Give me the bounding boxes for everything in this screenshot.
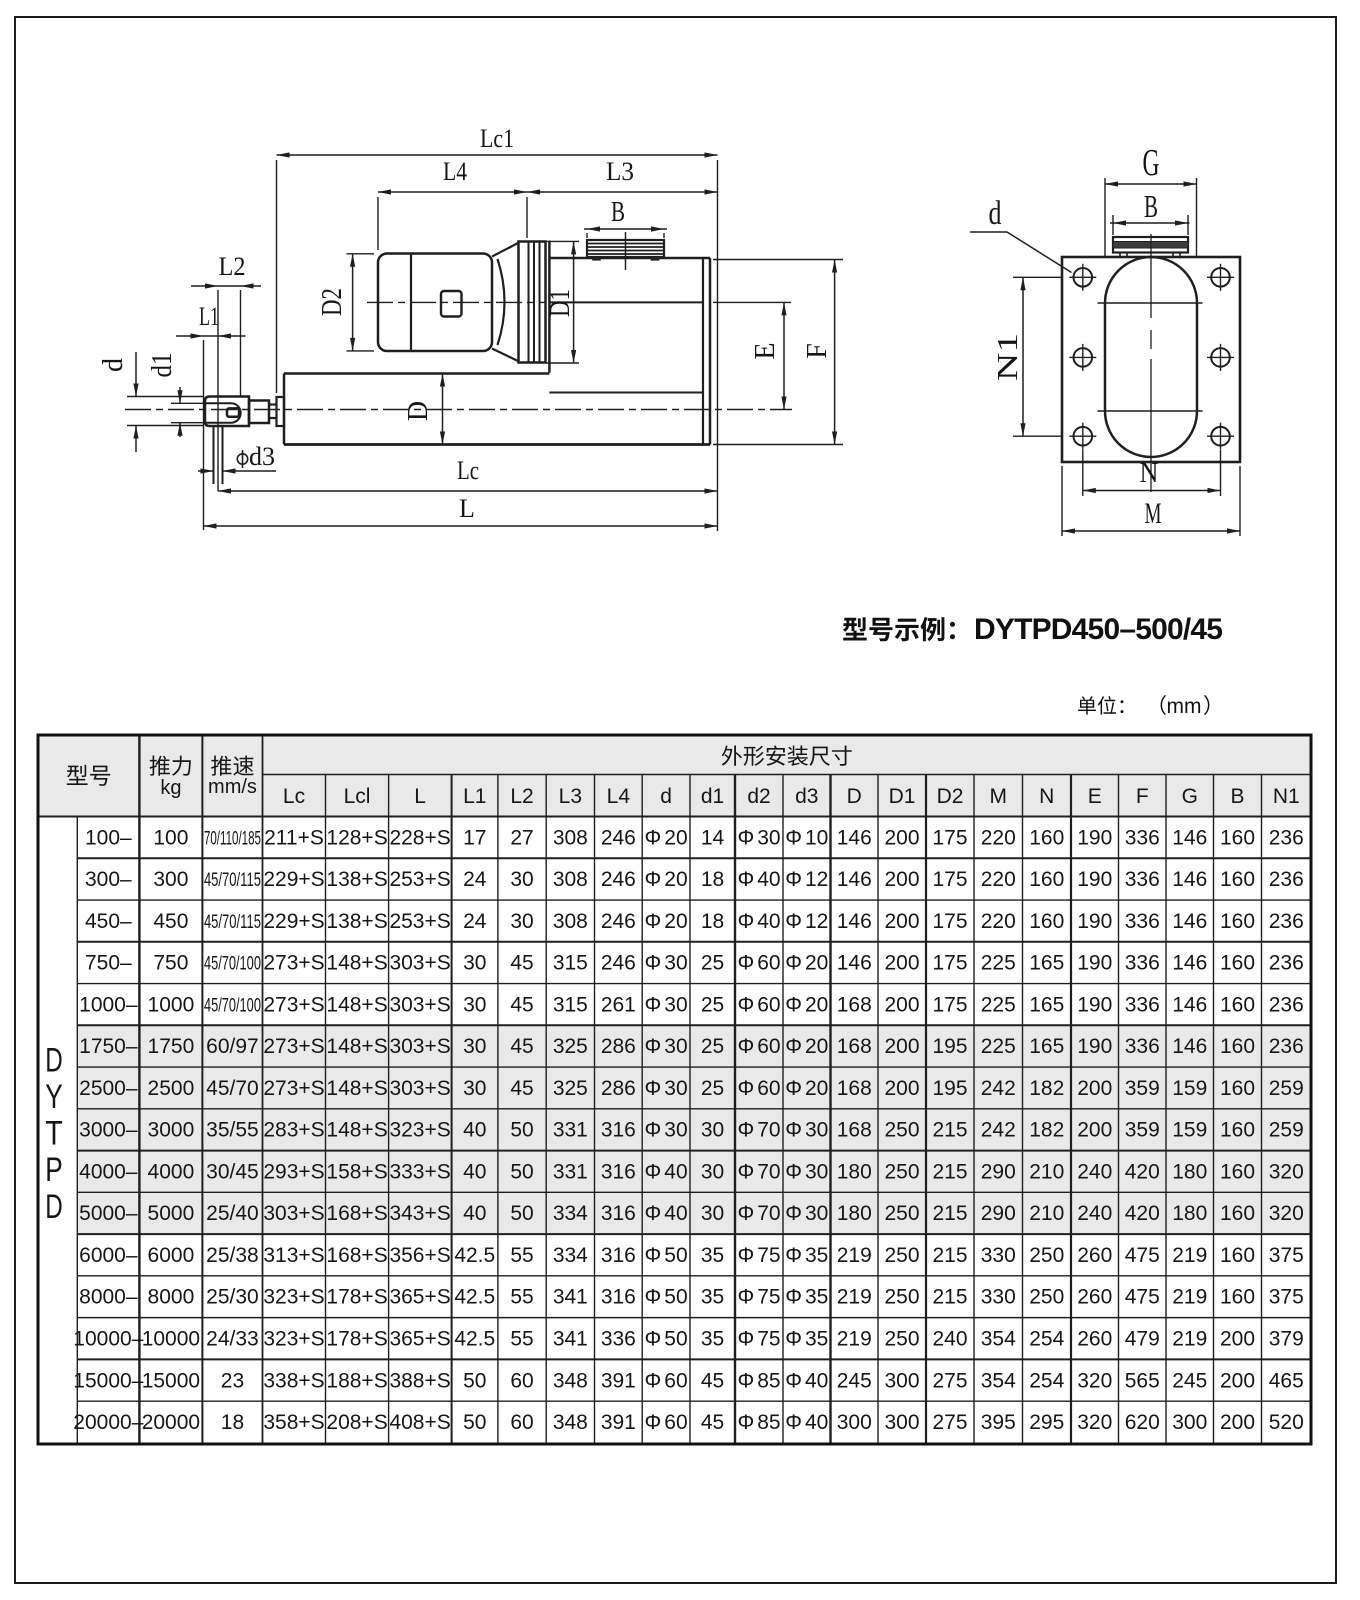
svg-text:30/45: 30/45: [206, 1160, 259, 1183]
svg-text:40: 40: [463, 1119, 486, 1142]
svg-text:146: 146: [1172, 826, 1207, 849]
svg-text:F: F: [1136, 785, 1149, 808]
svg-text:d3: d3: [795, 785, 818, 808]
svg-text:336: 336: [1125, 1035, 1160, 1058]
svg-text:180: 180: [837, 1160, 872, 1183]
svg-text:308: 308: [553, 868, 588, 891]
svg-text:315: 315: [553, 952, 588, 975]
svg-text:160: 160: [1220, 1160, 1255, 1183]
svg-text:220: 220: [981, 826, 1016, 849]
svg-text:331: 331: [553, 1160, 588, 1183]
svg-text:273+S: 273+S: [263, 993, 324, 1016]
svg-text:336: 336: [1125, 826, 1160, 849]
svg-text:35/55: 35/55: [206, 1119, 259, 1142]
svg-text:379: 379: [1269, 1328, 1304, 1351]
svg-text:293+S: 293+S: [263, 1160, 324, 1183]
svg-text:475: 475: [1125, 1244, 1160, 1267]
svg-text:50: 50: [510, 1202, 533, 1225]
svg-text:Φ40: Φ40: [645, 1160, 688, 1183]
svg-text:250: 250: [884, 1202, 919, 1225]
svg-text:359: 359: [1125, 1077, 1160, 1100]
svg-text:290: 290: [981, 1202, 1016, 1225]
svg-text:220: 220: [981, 910, 1016, 933]
svg-text:175: 175: [932, 826, 967, 849]
svg-text:1000: 1000: [148, 993, 195, 1016]
svg-text:T: T: [45, 1115, 63, 1153]
svg-text:228+S: 228+S: [389, 826, 450, 849]
svg-text:L: L: [414, 785, 426, 808]
svg-text:Φ12: Φ12: [785, 868, 828, 891]
svg-text:620: 620: [1125, 1411, 1160, 1434]
svg-text:273+S: 273+S: [263, 1035, 324, 1058]
svg-text:1750–: 1750–: [79, 1035, 138, 1058]
svg-text:358+S: 358+S: [263, 1411, 324, 1434]
svg-text:B: B: [611, 197, 625, 228]
svg-text:DYTPD450–500/45: DYTPD450–500/45: [974, 613, 1222, 646]
svg-text:190: 190: [1077, 826, 1112, 849]
svg-text:175: 175: [932, 910, 967, 933]
svg-text:330: 330: [981, 1286, 1016, 1309]
svg-text:mm: mm: [1167, 695, 1202, 718]
svg-text:225: 225: [981, 1035, 1016, 1058]
svg-text:L: L: [459, 494, 475, 523]
svg-text:320: 320: [1077, 1369, 1112, 1392]
svg-text:146: 146: [1172, 993, 1207, 1016]
svg-text:42.5: 42.5: [454, 1286, 495, 1309]
svg-text:325: 325: [553, 1035, 588, 1058]
svg-text:160: 160: [1220, 1286, 1255, 1309]
svg-text:303+S: 303+S: [389, 1035, 450, 1058]
svg-text:D: D: [45, 1041, 63, 1079]
svg-text:146: 146: [837, 910, 872, 933]
svg-text:336: 336: [1125, 868, 1160, 891]
svg-text:336: 336: [1125, 910, 1160, 933]
svg-text:254: 254: [1029, 1328, 1064, 1351]
svg-text:45/70/115: 45/70/115: [204, 870, 261, 891]
svg-text:Φ40: Φ40: [785, 1411, 828, 1434]
svg-text:219: 219: [837, 1286, 872, 1309]
svg-text:286: 286: [601, 1077, 636, 1100]
svg-text:479: 479: [1125, 1328, 1160, 1351]
svg-text:180: 180: [1172, 1160, 1207, 1183]
svg-text:2500: 2500: [148, 1077, 195, 1100]
svg-text:450: 450: [153, 910, 188, 933]
svg-text:42.5: 42.5: [454, 1328, 495, 1351]
svg-text:253+S: 253+S: [389, 868, 450, 891]
svg-text:60: 60: [510, 1369, 533, 1392]
svg-text:128+S: 128+S: [326, 826, 387, 849]
svg-text:Φ20: Φ20: [645, 826, 688, 849]
svg-text:450–: 450–: [85, 910, 132, 933]
svg-text:Φ60: Φ60: [737, 1077, 780, 1100]
svg-text:190: 190: [1077, 993, 1112, 1016]
svg-text:6000–: 6000–: [79, 1244, 138, 1267]
svg-text:200: 200: [884, 952, 919, 975]
svg-text:210: 210: [1029, 1160, 1064, 1183]
svg-text:100–: 100–: [85, 826, 132, 849]
svg-text:520: 520: [1269, 1411, 1304, 1434]
svg-text:10000–: 10000–: [73, 1328, 143, 1351]
svg-text:225: 225: [981, 993, 1016, 1016]
svg-text:300: 300: [837, 1411, 872, 1434]
svg-text:10000: 10000: [142, 1328, 200, 1351]
svg-text:254: 254: [1029, 1369, 1064, 1392]
svg-text:315: 315: [553, 993, 588, 1016]
svg-text:3000: 3000: [148, 1119, 195, 1142]
svg-text:50: 50: [463, 1369, 486, 1392]
svg-text:313+S: 313+S: [263, 1244, 324, 1267]
svg-text:25: 25: [701, 993, 724, 1016]
svg-text:Φ50: Φ50: [645, 1328, 688, 1351]
svg-text:d2: d2: [747, 785, 770, 808]
svg-text:341: 341: [553, 1286, 588, 1309]
svg-text:408+S: 408+S: [389, 1411, 450, 1434]
svg-text:D: D: [45, 1188, 63, 1226]
svg-text:250: 250: [1029, 1244, 1064, 1267]
svg-text:Φ75: Φ75: [737, 1286, 780, 1309]
svg-text:236: 236: [1269, 952, 1304, 975]
svg-text:200: 200: [1077, 1077, 1112, 1100]
svg-text:Lcl: Lcl: [344, 785, 371, 808]
svg-text:190: 190: [1077, 1035, 1112, 1058]
svg-text:323+S: 323+S: [263, 1286, 324, 1309]
svg-text:168: 168: [837, 1035, 872, 1058]
svg-text:175: 175: [932, 952, 967, 975]
svg-text:175: 175: [932, 993, 967, 1016]
svg-text:300: 300: [884, 1369, 919, 1392]
svg-text:148+S: 148+S: [326, 1035, 387, 1058]
svg-text:Φ60: Φ60: [737, 952, 780, 975]
svg-text:175: 175: [932, 868, 967, 891]
svg-text:5000–: 5000–: [79, 1202, 138, 1225]
svg-text:260: 260: [1077, 1328, 1112, 1351]
svg-text:L1: L1: [463, 785, 486, 808]
svg-text:300: 300: [153, 868, 188, 891]
svg-text:d1: d1: [147, 353, 178, 378]
svg-text:354: 354: [981, 1369, 1016, 1392]
svg-text:273+S: 273+S: [263, 1077, 324, 1100]
svg-text:300: 300: [884, 1411, 919, 1434]
svg-text:146: 146: [837, 826, 872, 849]
svg-text:250: 250: [884, 1286, 919, 1309]
svg-text:55: 55: [510, 1244, 533, 1267]
svg-text:375: 375: [1269, 1244, 1304, 1267]
svg-text:60/97: 60/97: [206, 1035, 259, 1058]
svg-text:Φ50: Φ50: [645, 1244, 688, 1267]
svg-text:160: 160: [1220, 826, 1255, 849]
svg-text:45/70/100: 45/70/100: [204, 995, 261, 1016]
svg-text:465: 465: [1269, 1369, 1304, 1392]
svg-text:336: 336: [601, 1328, 636, 1351]
svg-text:55: 55: [510, 1286, 533, 1309]
svg-text:330: 330: [981, 1244, 1016, 1267]
svg-text:242: 242: [981, 1077, 1016, 1100]
svg-text:Lc: Lc: [457, 456, 479, 485]
svg-text:Φ35: Φ35: [785, 1286, 828, 1309]
svg-text:Φ60: Φ60: [645, 1369, 688, 1392]
svg-text:25/30: 25/30: [206, 1286, 259, 1309]
svg-text:160: 160: [1220, 1202, 1255, 1225]
svg-text:30: 30: [510, 910, 533, 933]
svg-text:L3: L3: [606, 157, 634, 186]
svg-text:236: 236: [1269, 826, 1304, 849]
svg-text:320: 320: [1077, 1411, 1112, 1434]
svg-text:211+S: 211+S: [264, 826, 324, 849]
svg-text:250: 250: [884, 1244, 919, 1267]
svg-text:L1: L1: [199, 302, 219, 331]
svg-text:308: 308: [553, 910, 588, 933]
svg-text:Φ70: Φ70: [737, 1160, 780, 1183]
svg-text:341: 341: [553, 1328, 588, 1351]
svg-text:331: 331: [553, 1119, 588, 1142]
svg-text:260: 260: [1077, 1244, 1112, 1267]
svg-text:190: 190: [1077, 952, 1112, 975]
svg-text:24: 24: [463, 910, 487, 933]
svg-text:303+S: 303+S: [263, 1202, 324, 1225]
svg-text:18: 18: [701, 868, 724, 891]
svg-text:45: 45: [510, 993, 533, 1016]
svg-text:295: 295: [1029, 1411, 1064, 1434]
svg-text:25/38: 25/38: [206, 1244, 259, 1267]
svg-text:356+S: 356+S: [389, 1244, 450, 1267]
svg-text:Φ20: Φ20: [785, 993, 828, 1016]
svg-text:Φ40: Φ40: [737, 868, 780, 891]
svg-text:210: 210: [1029, 1202, 1064, 1225]
svg-text:D: D: [403, 401, 434, 421]
svg-text:159: 159: [1172, 1119, 1207, 1142]
svg-text:225: 225: [981, 952, 1016, 975]
svg-text:30: 30: [701, 1202, 724, 1225]
svg-text:146: 146: [1172, 952, 1207, 975]
svg-text:Φ30: Φ30: [645, 952, 688, 975]
svg-text:30: 30: [463, 952, 486, 975]
svg-text:50: 50: [463, 1411, 486, 1434]
svg-text:P: P: [45, 1151, 63, 1189]
svg-text:100: 100: [153, 826, 188, 849]
svg-text:4000–: 4000–: [79, 1160, 138, 1183]
svg-text:146: 146: [1172, 1035, 1207, 1058]
svg-text:160: 160: [1220, 868, 1255, 891]
svg-text:G: G: [1143, 142, 1160, 184]
svg-text:215: 215: [932, 1244, 967, 1267]
svg-text:750–: 750–: [85, 952, 132, 975]
svg-text:219: 219: [1172, 1244, 1207, 1267]
svg-text:148+S: 148+S: [326, 993, 387, 1016]
svg-text:750: 750: [153, 952, 188, 975]
svg-text:Φ12: Φ12: [785, 910, 828, 933]
svg-text:160: 160: [1220, 993, 1255, 1016]
svg-text:303+S: 303+S: [389, 1077, 450, 1100]
svg-text:391: 391: [601, 1369, 636, 1392]
svg-text:334: 334: [553, 1202, 588, 1225]
svg-text:30: 30: [463, 1077, 486, 1100]
svg-text:30: 30: [701, 1160, 724, 1183]
svg-text:Φ40: Φ40: [737, 910, 780, 933]
svg-text:215: 215: [932, 1119, 967, 1142]
svg-text:334: 334: [553, 1244, 588, 1267]
svg-text:260: 260: [1077, 1286, 1112, 1309]
svg-text:316: 316: [601, 1160, 636, 1183]
svg-text:18: 18: [221, 1411, 244, 1434]
svg-text:25: 25: [701, 1035, 724, 1058]
svg-text:146: 146: [1172, 868, 1207, 891]
svg-text:190: 190: [1077, 868, 1112, 891]
svg-text:Lc1: Lc1: [480, 124, 514, 153]
svg-text:348: 348: [553, 1369, 588, 1392]
svg-text:160: 160: [1220, 910, 1255, 933]
svg-text:N1: N1: [992, 333, 1024, 381]
svg-text:159: 159: [1172, 1077, 1207, 1100]
svg-text:375: 375: [1269, 1286, 1304, 1309]
svg-text:148+S: 148+S: [326, 952, 387, 975]
svg-text:300: 300: [1172, 1411, 1207, 1434]
svg-text:220: 220: [981, 868, 1016, 891]
svg-text:200: 200: [884, 1035, 919, 1058]
svg-text:Φ70: Φ70: [737, 1202, 780, 1225]
svg-text:45: 45: [701, 1369, 724, 1392]
svg-text:316: 316: [601, 1119, 636, 1142]
svg-text:158+S: 158+S: [326, 1160, 387, 1183]
svg-text:323+S: 323+S: [263, 1328, 324, 1351]
svg-text:261: 261: [601, 993, 636, 1016]
svg-text:219: 219: [837, 1244, 872, 1267]
svg-text:mm/s: mm/s: [208, 776, 257, 798]
svg-text:1000–: 1000–: [79, 993, 138, 1016]
svg-text:d: d: [660, 785, 672, 808]
svg-text:Φ20: Φ20: [785, 1077, 828, 1100]
svg-text:236: 236: [1269, 868, 1304, 891]
svg-text:D1: D1: [545, 289, 576, 317]
svg-text:253+S: 253+S: [389, 910, 450, 933]
svg-text:Φ85: Φ85: [737, 1369, 780, 1392]
svg-text:D1: D1: [889, 785, 916, 808]
svg-text:15000: 15000: [142, 1369, 200, 1392]
svg-text:246: 246: [601, 826, 636, 849]
svg-text:200: 200: [1220, 1328, 1255, 1351]
svg-text:Φ10: Φ10: [785, 826, 828, 849]
svg-text:259: 259: [1269, 1077, 1304, 1100]
svg-text:14: 14: [701, 826, 725, 849]
svg-text:d3: d3: [249, 442, 275, 471]
svg-text:165: 165: [1029, 952, 1064, 975]
svg-text:138+S: 138+S: [326, 910, 387, 933]
svg-text:250: 250: [884, 1160, 919, 1183]
svg-text:Φ60: Φ60: [737, 993, 780, 1016]
svg-text:d: d: [989, 195, 1002, 232]
svg-text:6000: 6000: [148, 1244, 195, 1267]
svg-text:N: N: [1140, 457, 1159, 489]
svg-text:365+S: 365+S: [389, 1286, 450, 1309]
svg-text:160: 160: [1220, 952, 1255, 975]
svg-text:388+S: 388+S: [389, 1369, 450, 1392]
svg-text:60: 60: [510, 1411, 533, 1434]
svg-text:G: G: [1182, 785, 1198, 808]
svg-text:30: 30: [463, 1035, 486, 1058]
svg-text:200: 200: [884, 826, 919, 849]
svg-text:8000: 8000: [148, 1286, 195, 1309]
svg-text:Φ60: Φ60: [737, 1035, 780, 1058]
svg-text:195: 195: [932, 1077, 967, 1100]
svg-text:146: 146: [837, 868, 872, 891]
svg-text:420: 420: [1125, 1202, 1160, 1225]
svg-text:Lc: Lc: [283, 785, 305, 808]
svg-text:Φ30: Φ30: [785, 1160, 828, 1183]
svg-text:160: 160: [1220, 1244, 1255, 1267]
svg-text:3000–: 3000–: [79, 1119, 138, 1142]
svg-text:286: 286: [601, 1035, 636, 1058]
svg-text:5000: 5000: [148, 1202, 195, 1225]
svg-text:40: 40: [463, 1160, 486, 1183]
svg-text:320: 320: [1269, 1160, 1304, 1183]
svg-text:182: 182: [1029, 1077, 1064, 1100]
svg-text:273+S: 273+S: [263, 952, 324, 975]
svg-text:565: 565: [1125, 1369, 1160, 1392]
svg-text:Y: Y: [45, 1078, 63, 1116]
svg-text:d1: d1: [701, 785, 724, 808]
svg-text:250: 250: [1029, 1286, 1064, 1309]
svg-text:250: 250: [884, 1119, 919, 1142]
svg-text:15000–: 15000–: [73, 1369, 143, 1392]
svg-text:354: 354: [981, 1328, 1016, 1351]
svg-text:259: 259: [1269, 1119, 1304, 1142]
svg-text:160: 160: [1220, 1035, 1255, 1058]
svg-text:200: 200: [1077, 1119, 1112, 1142]
svg-text:24/33: 24/33: [206, 1328, 259, 1351]
svg-text:E: E: [750, 342, 781, 359]
svg-text:316: 316: [601, 1202, 636, 1225]
svg-text:178+S: 178+S: [326, 1328, 387, 1351]
svg-text:246: 246: [601, 910, 636, 933]
svg-text:200: 200: [1220, 1369, 1255, 1392]
svg-text:Φ60: Φ60: [645, 1411, 688, 1434]
svg-text:Φ30: Φ30: [785, 1202, 828, 1225]
svg-text:180: 180: [1172, 1202, 1207, 1225]
svg-text:359: 359: [1125, 1119, 1160, 1142]
svg-text:40: 40: [463, 1202, 486, 1225]
svg-text:200: 200: [884, 868, 919, 891]
svg-text:316: 316: [601, 1286, 636, 1309]
svg-text:25: 25: [701, 1077, 724, 1100]
svg-text:283+S: 283+S: [263, 1119, 324, 1142]
svg-text:Φ30: Φ30: [737, 826, 780, 849]
svg-text:160: 160: [1220, 1077, 1255, 1100]
svg-text:Φ20: Φ20: [645, 868, 688, 891]
svg-text:B: B: [1230, 785, 1244, 808]
svg-text:316: 316: [601, 1244, 636, 1267]
svg-text:146: 146: [837, 952, 872, 975]
svg-text:178+S: 178+S: [326, 1286, 387, 1309]
svg-text:182: 182: [1029, 1119, 1064, 1142]
svg-text:Φ75: Φ75: [737, 1328, 780, 1351]
svg-text:50: 50: [510, 1119, 533, 1142]
svg-text:35: 35: [701, 1244, 724, 1267]
svg-text:146: 146: [1172, 910, 1207, 933]
svg-text:391: 391: [601, 1411, 636, 1434]
svg-text:M: M: [990, 785, 1008, 808]
svg-text:N: N: [1039, 785, 1054, 808]
svg-text:160: 160: [1029, 826, 1064, 849]
svg-text:20000: 20000: [142, 1411, 200, 1434]
svg-text:250: 250: [884, 1328, 919, 1351]
svg-text:236: 236: [1269, 910, 1304, 933]
svg-text:200: 200: [1220, 1411, 1255, 1434]
svg-text:365+S: 365+S: [389, 1328, 450, 1351]
svg-text:188+S: 188+S: [326, 1369, 387, 1392]
svg-text:195: 195: [932, 1035, 967, 1058]
svg-text:229+S: 229+S: [263, 910, 324, 933]
svg-text:395: 395: [981, 1411, 1016, 1434]
svg-text:Φ35: Φ35: [785, 1328, 828, 1351]
